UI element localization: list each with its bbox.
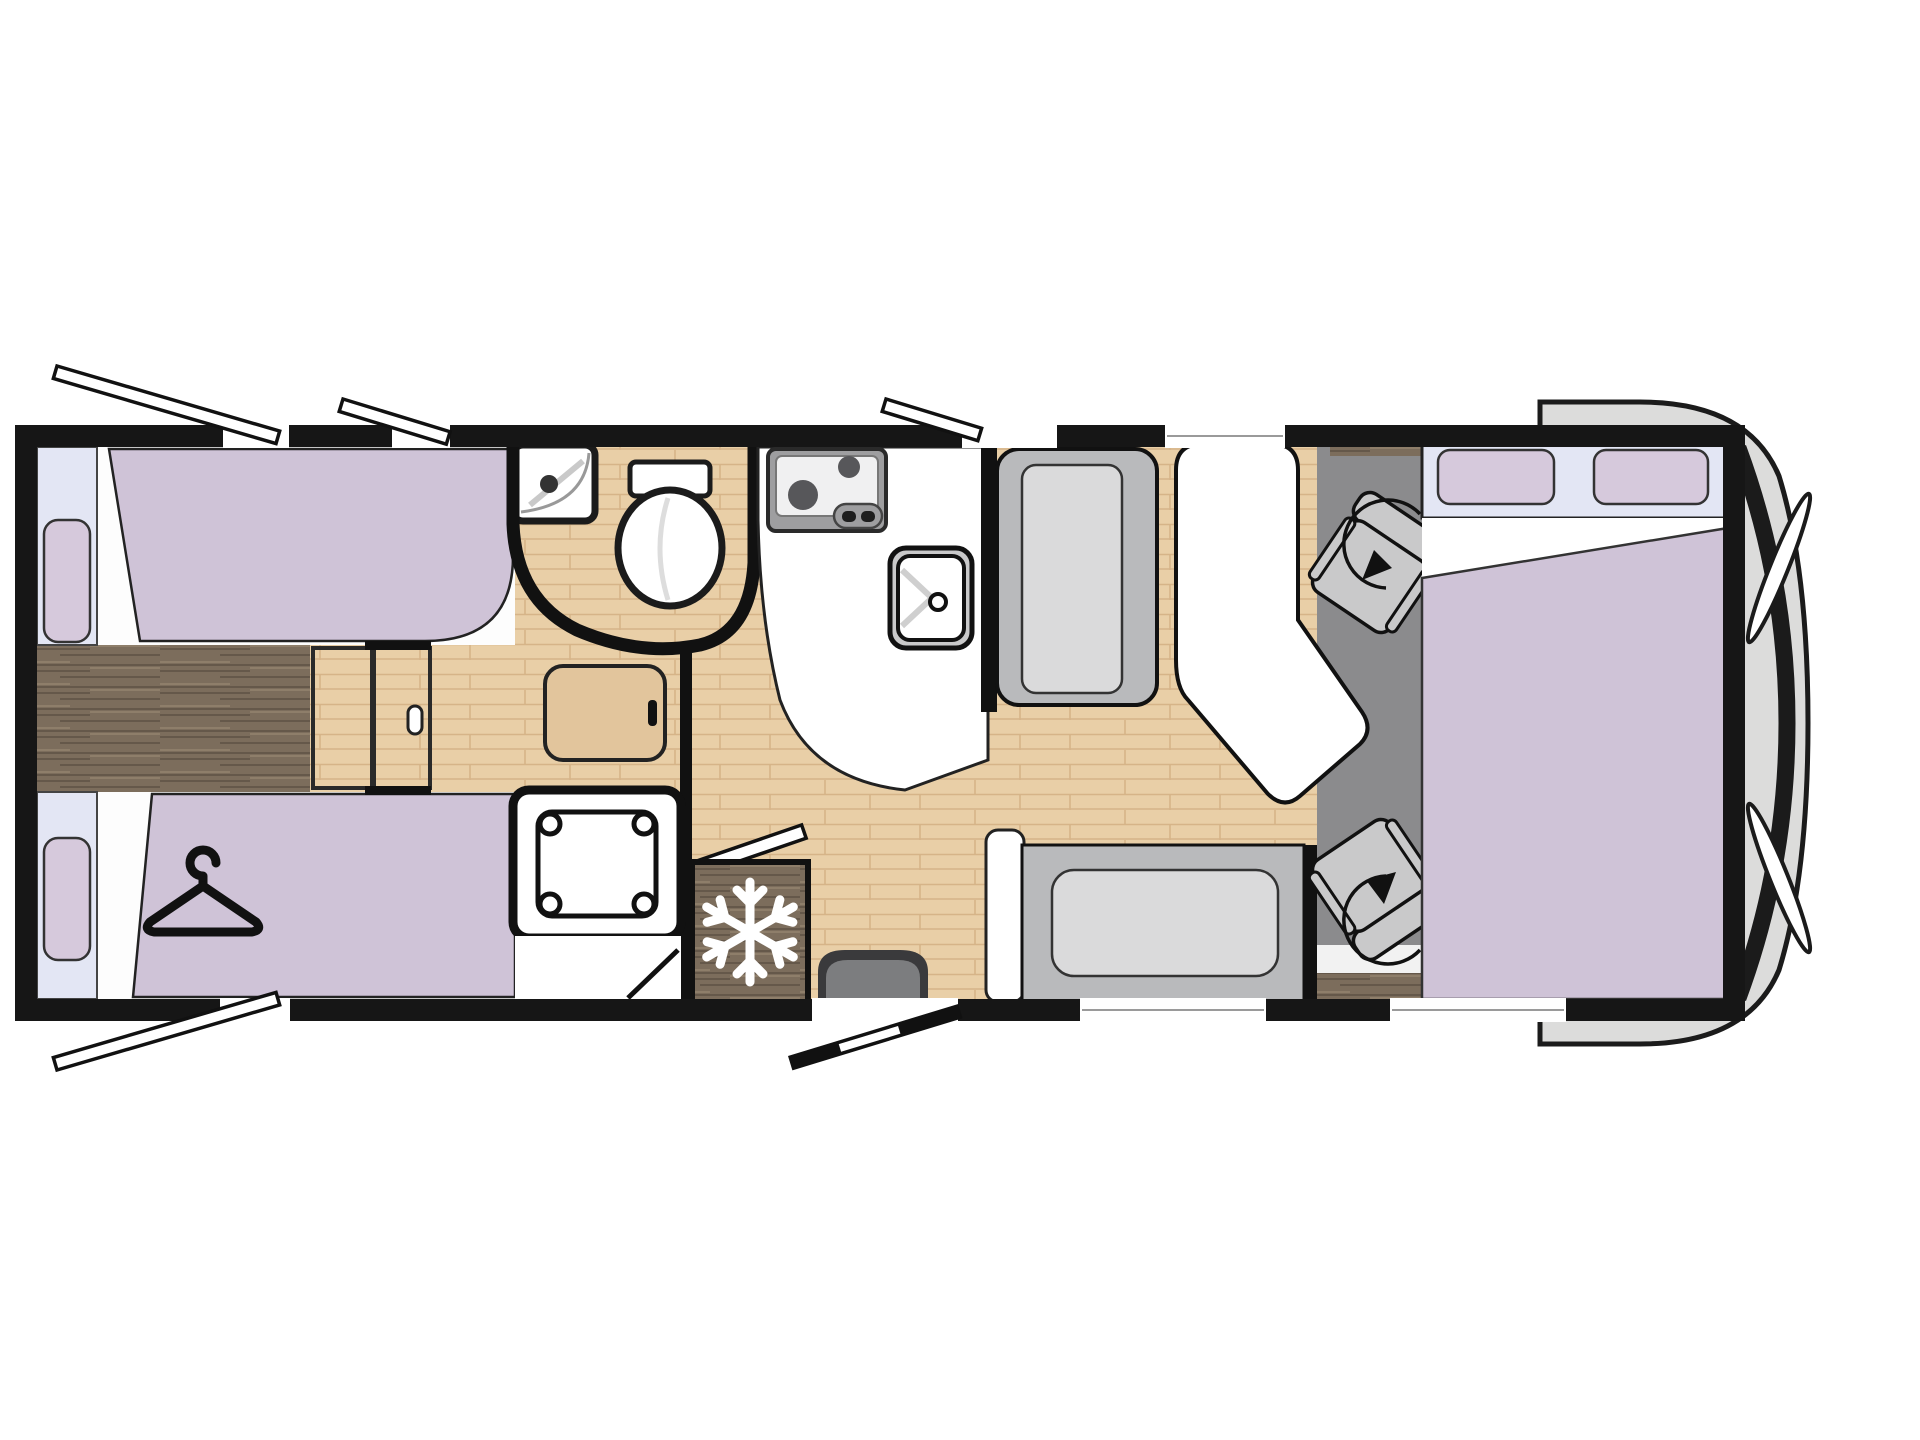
forward-facing-bench [997,449,1157,705]
step-cabinets [313,641,431,795]
burner-small [838,456,860,478]
drop-down-bed [1422,436,1728,999]
cabinet-handle [648,700,657,726]
pillow-bottom [44,838,90,960]
bench-armrest [986,830,1024,1002]
side-bench [986,830,1304,1003]
basin-drain [540,475,558,493]
toilet [618,462,722,606]
bedroom-walkway-dark-wood [37,645,310,792]
corner-washbasin [513,445,595,521]
bench-cushion [1022,465,1122,693]
cab-pillow-right [1594,450,1708,504]
bench-cushion [1052,870,1278,976]
cabinet-handle [408,706,422,734]
refrigerator [692,862,808,1003]
pillow-top [44,520,90,642]
kitchen-sink [890,548,972,648]
drop-down-mattress [1422,528,1728,999]
sink-drain [930,594,946,610]
two-burner-hob [768,449,886,531]
bedside-cabinet [545,666,665,760]
motorhome-floorplan [0,0,1920,1440]
kitchen-divider-wall [981,436,997,712]
cab-shelf-bottom [1317,973,1423,1001]
cab-pillow-left [1438,450,1554,504]
shower-entry [515,936,681,999]
burner-large [788,480,818,510]
bed-top-mattress [109,449,513,641]
shower [513,790,681,999]
